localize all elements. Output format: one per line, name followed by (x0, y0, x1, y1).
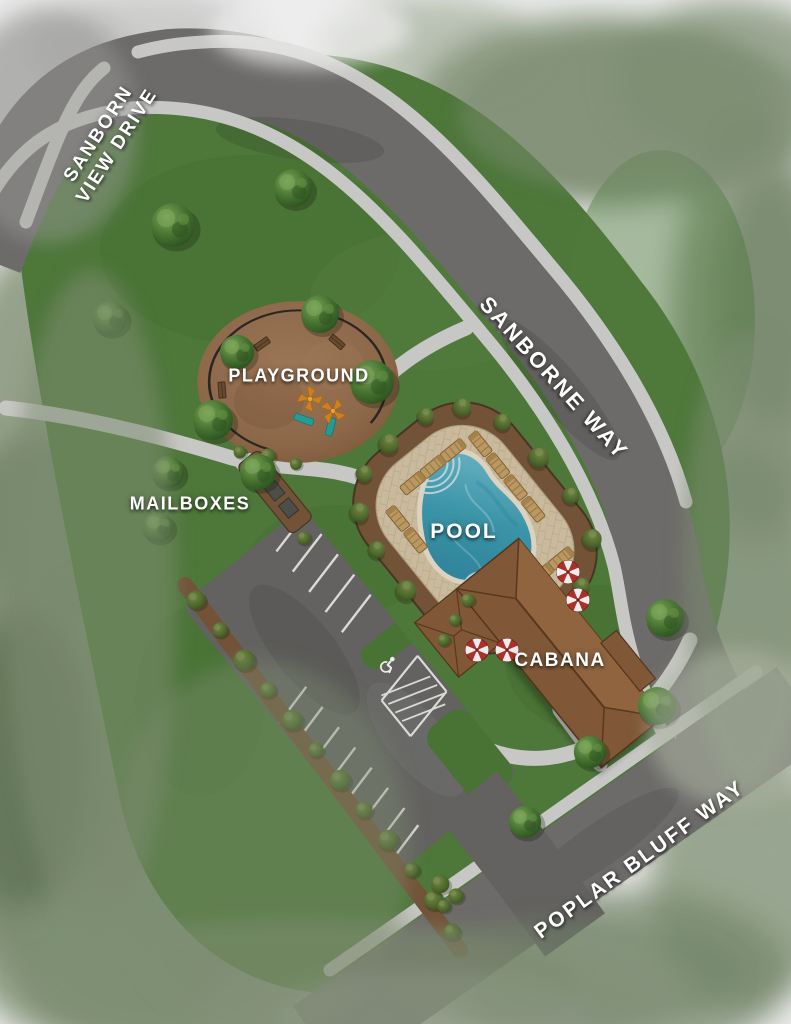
site-plan-page: SANBORN VIEW DRIVE SANBORNE WAY POPLAR B… (0, 0, 791, 1024)
amenity-label-mailboxes: MAILBOXES (130, 494, 251, 515)
amenity-label-pool: POOL (430, 520, 498, 544)
amenity-label-playground: PLAYGROUND (228, 366, 369, 387)
amenity-label-cabana: CABANA (514, 650, 605, 672)
